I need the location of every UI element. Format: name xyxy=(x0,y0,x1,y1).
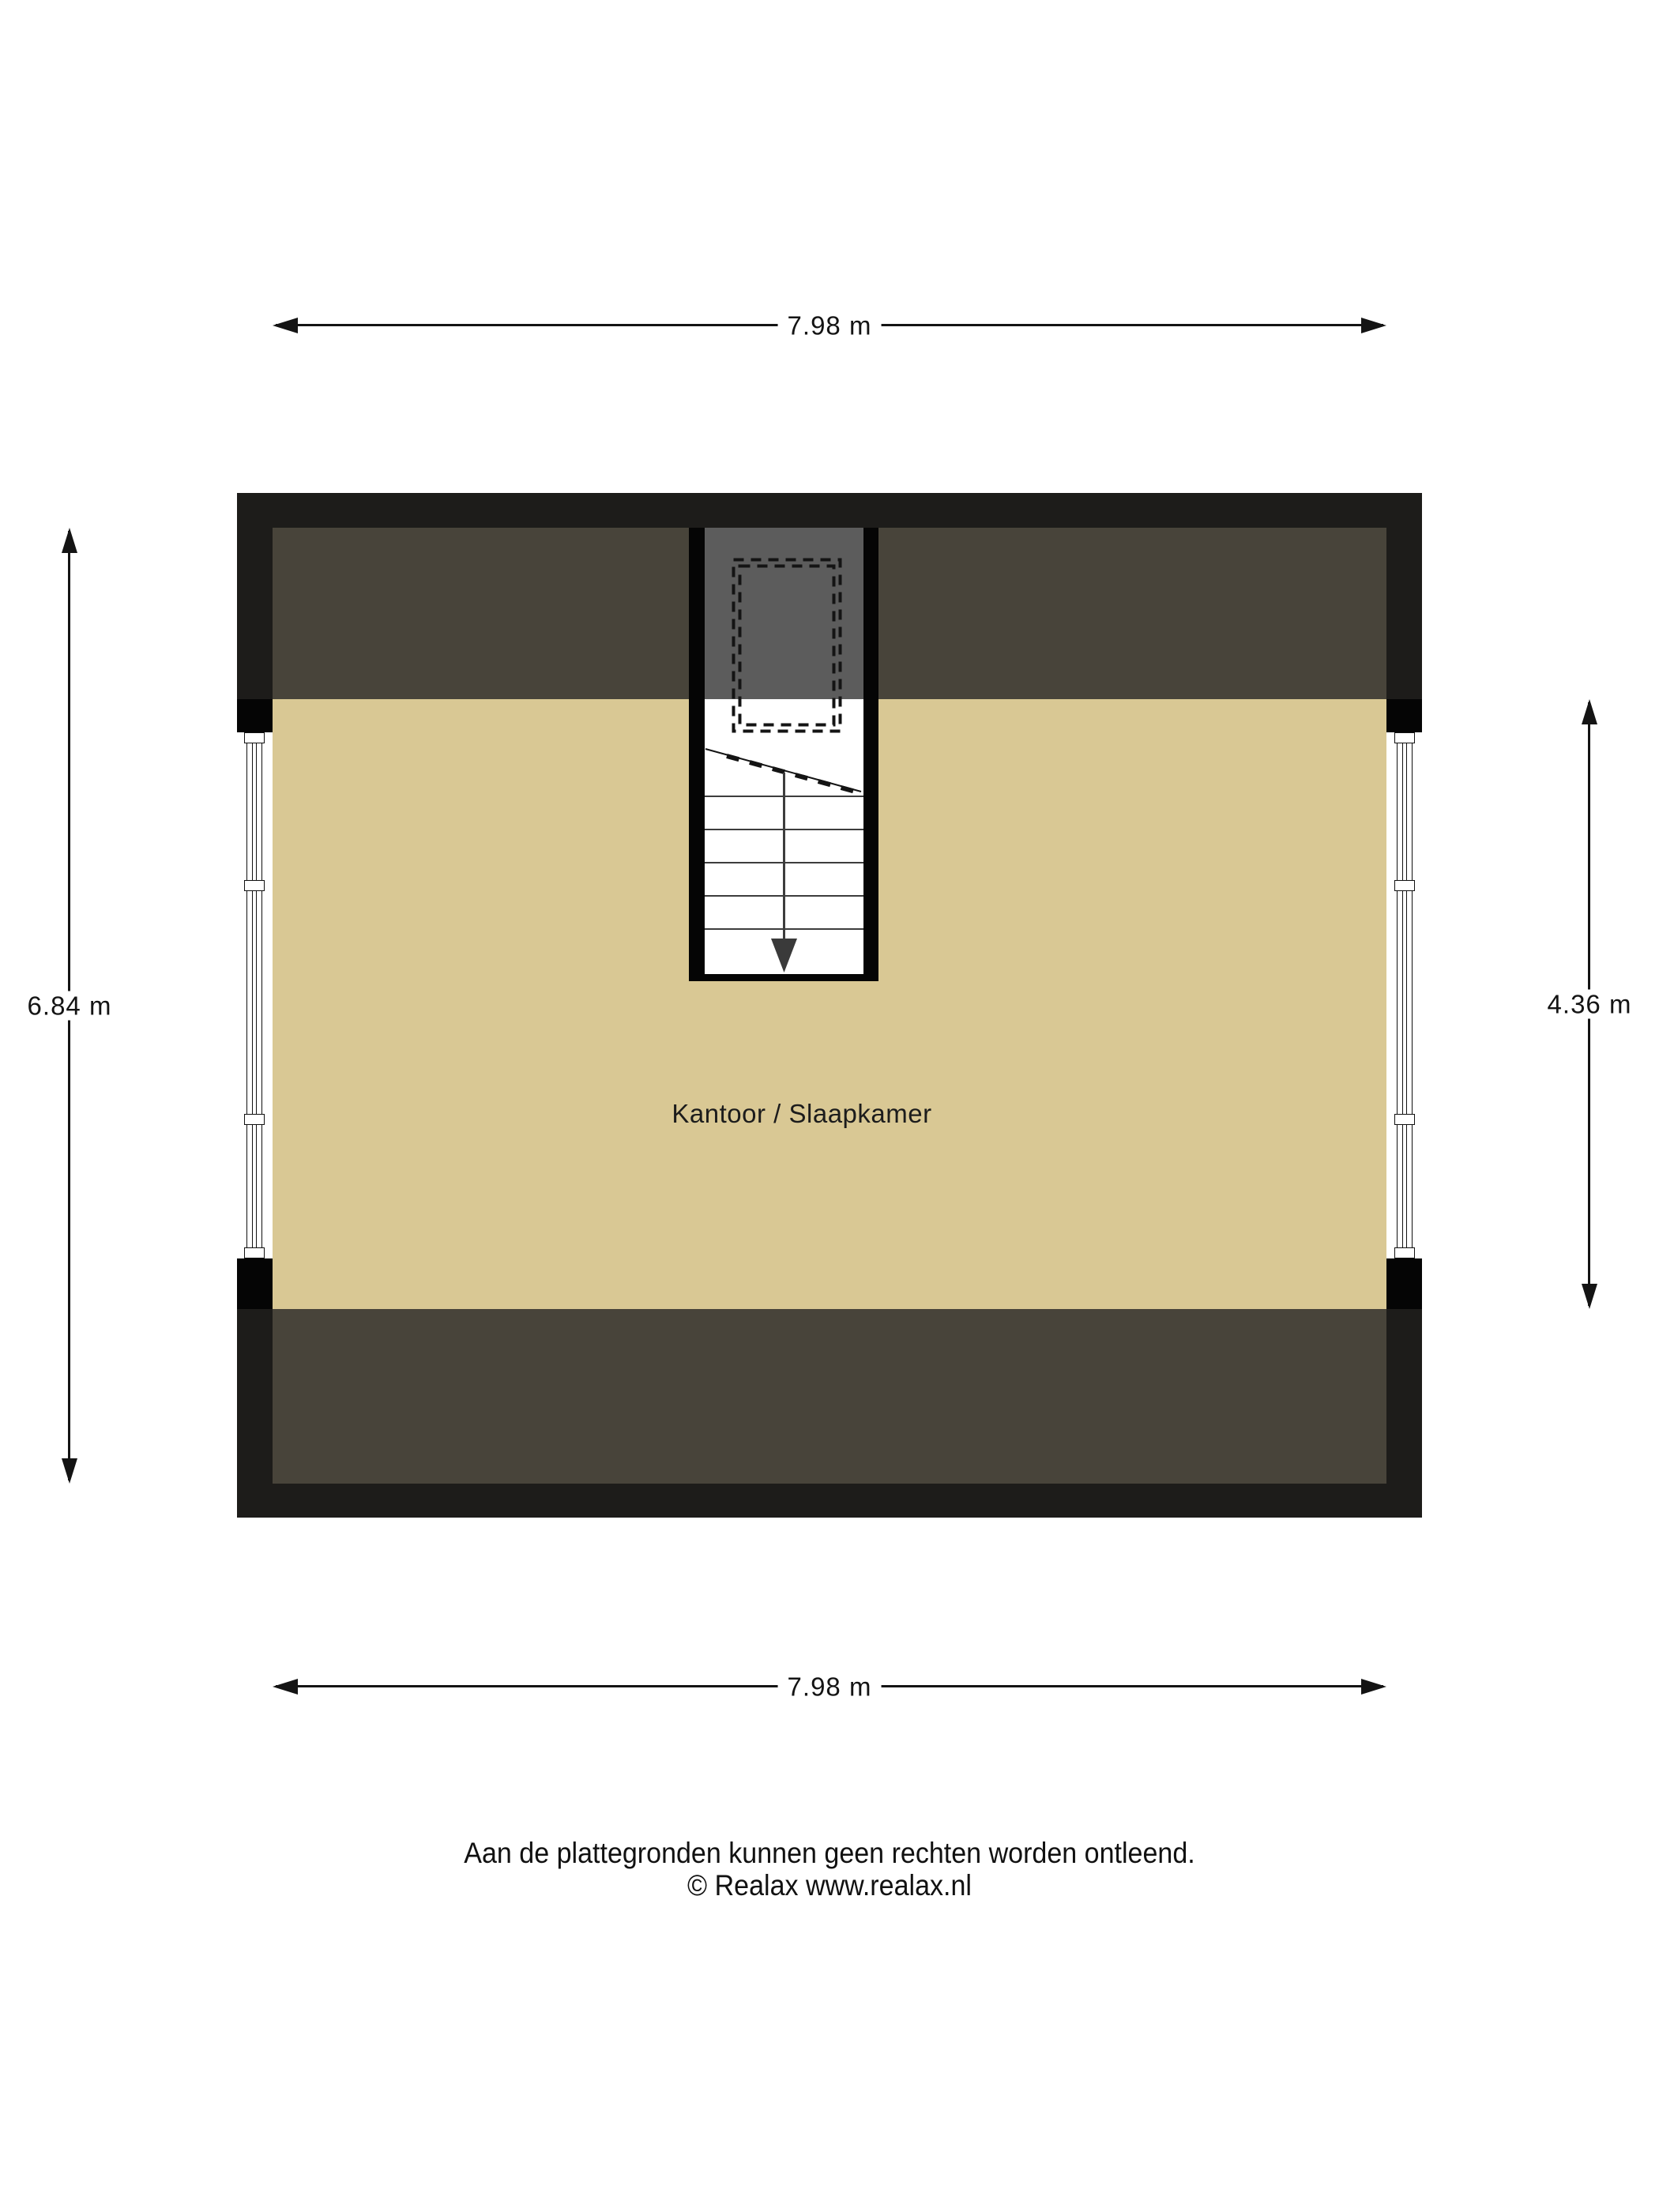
dimension-left-label: 6.84 m xyxy=(18,991,122,1021)
dimension-right-label: 4.36 m xyxy=(1538,990,1642,1019)
arrow-up-icon xyxy=(62,528,77,553)
window-frame-cap xyxy=(1394,732,1415,743)
footer-copyright: © Realax www.realax.nl xyxy=(66,1869,1593,1902)
footer-disclaimer: Aan de plattegronden kunnen geen rechten… xyxy=(66,1837,1593,1869)
dimension-top: 7.98 m xyxy=(273,315,1386,336)
window-glass-lines xyxy=(252,733,257,1258)
window-mullion xyxy=(1394,1114,1415,1125)
arrow-right-icon xyxy=(1361,318,1386,333)
floorplan-page: 7.98 m 7.98 m 6.84 m 4.36 m xyxy=(0,0,1659,2212)
window-left xyxy=(246,732,262,1258)
staircase xyxy=(689,528,878,981)
arrow-left-icon xyxy=(273,1679,298,1695)
dimension-bottom: 7.98 m xyxy=(273,1676,1386,1697)
window-jamb-bottom-left xyxy=(237,1258,273,1309)
arrow-right-icon xyxy=(1361,1679,1386,1695)
arrow-up-icon xyxy=(1582,699,1597,724)
window-frame-cap xyxy=(244,1247,265,1258)
dimension-right: 4.36 m xyxy=(1579,699,1600,1309)
dimension-top-label: 7.98 m xyxy=(778,311,882,340)
sloped-ceiling-bottom xyxy=(273,1309,1386,1484)
window-jamb-bottom-right xyxy=(1386,1258,1422,1309)
arrow-down-icon xyxy=(62,1458,77,1484)
window-mullion xyxy=(244,1114,265,1125)
arrow-down-icon xyxy=(1582,1284,1597,1309)
dimension-bottom-label: 7.98 m xyxy=(778,1672,882,1702)
window-jamb-top-left xyxy=(237,699,273,732)
stairwell xyxy=(689,528,878,981)
window-jamb-top-right xyxy=(1386,699,1422,732)
window-right xyxy=(1397,732,1413,1258)
window-mullion xyxy=(244,880,265,891)
window-frame-cap xyxy=(244,732,265,743)
arrow-left-icon xyxy=(273,318,298,333)
dimension-left: 6.84 m xyxy=(59,528,80,1484)
room-label: Kantoor / Slaapkamer xyxy=(671,1099,931,1129)
window-glass-lines xyxy=(1402,733,1407,1258)
footer: Aan de plattegronden kunnen geen rechten… xyxy=(0,1837,1659,1902)
window-frame-cap xyxy=(1394,1247,1415,1258)
window-mullion xyxy=(1394,880,1415,891)
